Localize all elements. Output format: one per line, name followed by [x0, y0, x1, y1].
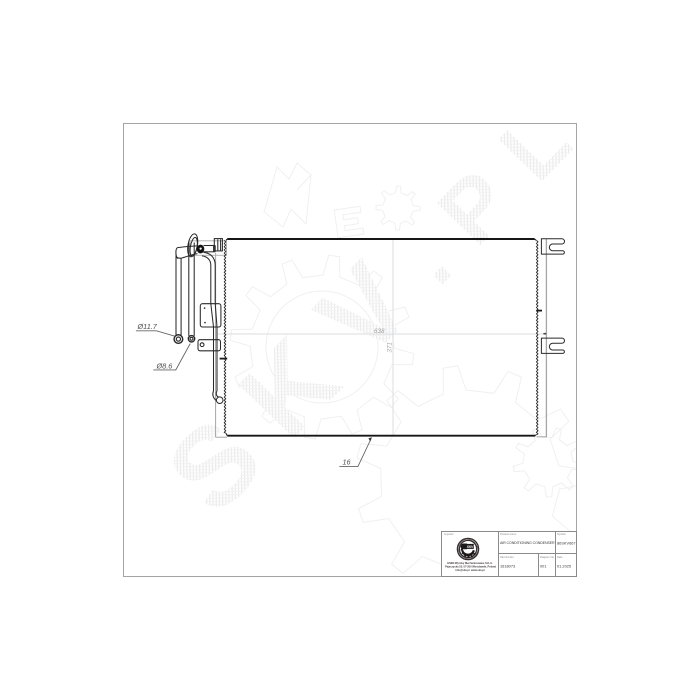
svg-text:SKV: SKV	[467, 544, 474, 548]
svg-text:Ø8.6: Ø8.6	[156, 361, 174, 370]
svg-text:Ø11.7: Ø11.7	[137, 322, 158, 331]
svg-text:16: 16	[343, 457, 352, 466]
svg-text:371: 371	[387, 342, 394, 353]
svg-text:SKV.PL: SKV.PL	[143, 55, 613, 535]
svg-text:638: 638	[374, 328, 385, 335]
